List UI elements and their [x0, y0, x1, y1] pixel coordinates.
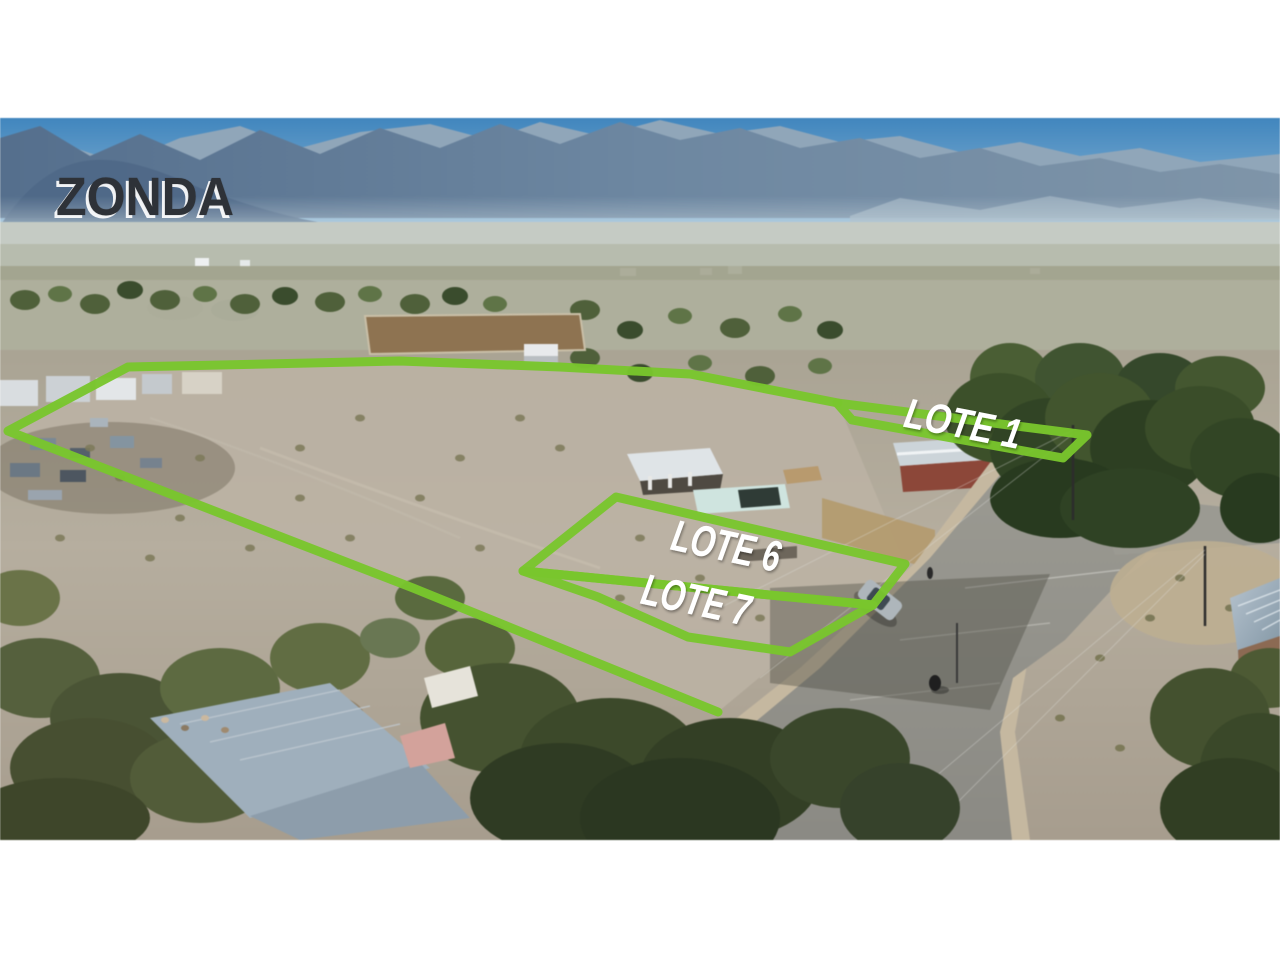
letterbox-bottom	[0, 840, 1280, 960]
aerial-photo: LOTE 1 LOTE 6 LOTE 7 ZONDA ZONDA	[0, 118, 1280, 840]
lote-6-label: LOTE 6	[667, 511, 785, 582]
letterbox-top	[0, 0, 1280, 118]
watermark-text: ZONDA	[56, 167, 234, 227]
annotation-overlay: LOTE 1 LOTE 6 LOTE 7 ZONDA ZONDA	[0, 118, 1280, 840]
listing-image-canvas: LOTE 1 LOTE 6 LOTE 7 ZONDA ZONDA	[0, 0, 1280, 960]
watermark-logo: ZONDA ZONDA	[53, 167, 234, 230]
lote-1-label: LOTE 1	[901, 389, 1026, 458]
